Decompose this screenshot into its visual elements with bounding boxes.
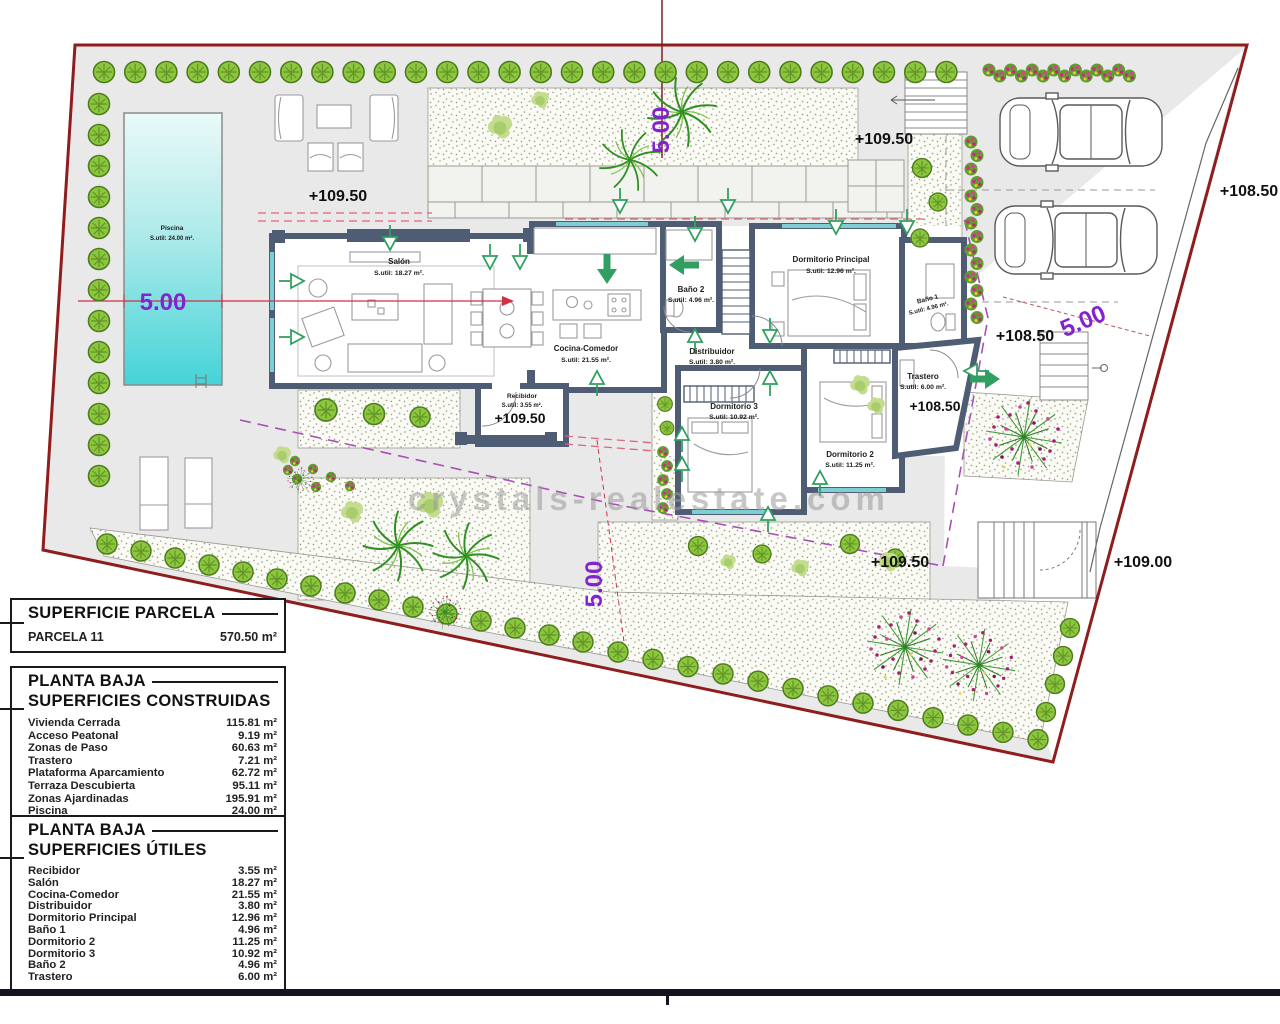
table-subtitle: SUPERFICIES ÚTILES [28, 840, 207, 860]
elevation-109-50: +109.50 [495, 410, 546, 426]
bottom-border-bar [0, 989, 1280, 996]
distribuidor-label: Distribuidor [689, 347, 734, 356]
cocina-label: Cocina-Comedor [554, 344, 618, 353]
table-superficies-utiles: PLANTA BAJA SUPERFICIES ÚTILES Recibidor… [10, 815, 286, 992]
trastero-label: Trastero [907, 372, 939, 381]
salon-area: S.util: 18.27 m². [374, 270, 424, 277]
elevation-108-50: +108.50 [996, 328, 1054, 345]
dormitorio-principal-area: S.util: 12.96 m². [806, 268, 856, 275]
pool-label: Piscina [161, 225, 184, 232]
banyo2-label: Baño 2 [678, 285, 705, 294]
dormitorio3-label: Dormitorio 3 [710, 402, 758, 411]
car-top-view [1000, 93, 1162, 171]
trastero-area: S.util: 6.00 m². [900, 384, 946, 391]
table-row: Baño 14.96 m² [12, 925, 284, 937]
elevation-109-50: +109.50 [309, 188, 367, 205]
dimension-5m: 5.00 [140, 289, 187, 316]
table-tick [0, 622, 24, 624]
table-row: PARCELA 11 570.50 m² [12, 629, 284, 645]
elevation-109-50: +109.50 [855, 131, 913, 148]
dormitorio2-label: Dormitorio 2 [826, 450, 874, 459]
table-tick [0, 857, 24, 859]
table-row: Terraza Descubierta95.11 m² [12, 780, 284, 793]
dimension-5m: 5.00 [648, 107, 675, 154]
table-title: SUPERFICIE PARCELA [28, 603, 216, 623]
table-superficie-parcela: SUPERFICIE PARCELA PARCELA 11 570.50 m² [10, 598, 286, 653]
table-row: Dormitorio 211.25 m² [12, 937, 284, 949]
cocina-area: S.util: 21.55 m². [561, 357, 611, 364]
stairs-bottom-entrance [978, 522, 1096, 598]
table-title: PLANTA BAJA [28, 671, 146, 691]
table-title: PLANTA BAJA [28, 820, 146, 840]
dormitorio2-area: S.util: 11.25 m². [825, 462, 875, 469]
site-plan-page: Piscina S.util: 24.00 m². Salón S.util: … [0, 0, 1280, 1024]
distribuidor-area: S.util: 3.80 m². [689, 359, 735, 366]
table-tick [0, 708, 24, 710]
elevation-108-50: +108.50 [910, 398, 961, 414]
pool-area: S.util: 24.00 m². [150, 235, 194, 242]
bottom-border-tick [666, 996, 669, 1005]
salon-label: Salón [388, 257, 410, 266]
table-superficies-construidas: PLANTA BAJA SUPERFICIES CONSTRUIDAS Vivi… [10, 666, 286, 826]
swimming-pool [124, 113, 222, 388]
table-row: Acceso Peatonal9.19 m² [12, 730, 284, 743]
dimension-5m: 5.00 [581, 561, 608, 608]
elevation-108-50: +108.50 [1220, 183, 1278, 200]
paving-walkway [428, 160, 904, 218]
recibidor-area: S.util: 3.55 m². [502, 402, 543, 409]
table-row: Vivienda Cerrada115.81 m² [12, 717, 284, 730]
table-row: Zonas de Paso60.63 m² [12, 742, 284, 755]
table-row: Salón18.27 m² [12, 878, 284, 890]
table-row: Trastero6.00 m² [12, 972, 284, 984]
table-row: Zonas Ajardinadas195.91 m² [12, 793, 284, 806]
elevation-109-50: +109.50 [871, 554, 929, 571]
recibidor-label: Recibidor [507, 393, 537, 400]
table-subtitle: SUPERFICIES CONSTRUIDAS [28, 691, 271, 711]
elevation-109-00: +109.00 [1114, 554, 1172, 571]
banyo2-area: S.util: 4.96 m². [668, 297, 714, 304]
table-row: Plataforma Aparcamiento62.72 m² [12, 767, 284, 780]
dormitorio3-area: S.util: 10.92 m². [709, 414, 759, 421]
car-top-view [995, 201, 1157, 279]
dormitorio-principal-label: Dormitorio Principal [793, 255, 870, 264]
table-row: Trastero7.21 m² [12, 755, 284, 768]
